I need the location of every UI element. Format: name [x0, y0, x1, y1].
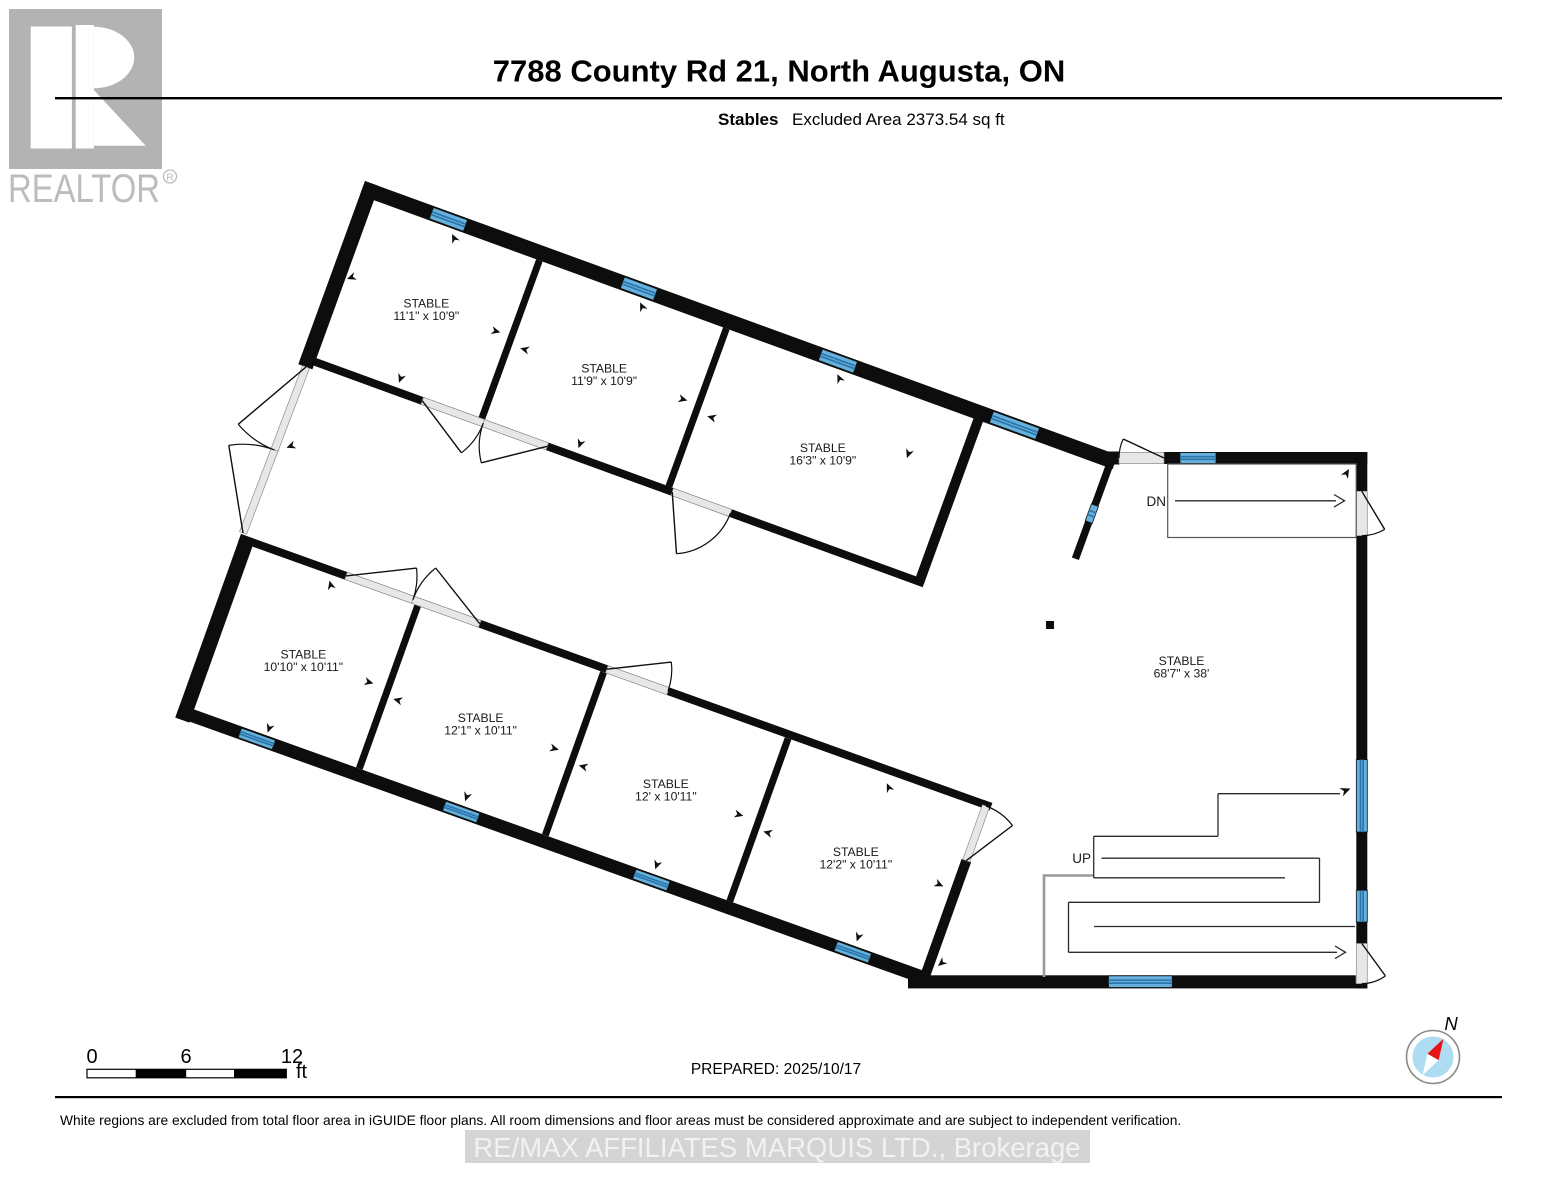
svg-text:White regions are excluded fro: White regions are excluded from total fl… [60, 1113, 1181, 1128]
svg-text:12'2" x 10'11": 12'2" x 10'11" [819, 858, 892, 872]
svg-text:R: R [166, 173, 173, 184]
svg-text:REALTOR: REALTOR [8, 167, 160, 211]
svg-text:RE/MAX AFFILIATES MARQUIS LTD.: RE/MAX AFFILIATES MARQUIS LTD., Brokerag… [473, 1132, 1080, 1163]
svg-text:10'10" x 10'11": 10'10" x 10'11" [264, 660, 344, 674]
svg-text:11'1" x 10'9": 11'1" x 10'9" [393, 309, 459, 323]
svg-text:N: N [1444, 1013, 1458, 1034]
svg-text:Stables: Stables [718, 110, 778, 129]
svg-text:ft: ft [296, 1061, 308, 1083]
svg-text:7788 County Rd 21, North Augus: 7788 County Rd 21, North Augusta, ON [493, 54, 1065, 89]
svg-text:UP: UP [1072, 851, 1091, 866]
svg-text:68'7" x 38': 68'7" x 38' [1154, 667, 1210, 681]
svg-text:PREPARED: 2025/10/17: PREPARED: 2025/10/17 [691, 1061, 861, 1078]
svg-text:16'3" x 10'9": 16'3" x 10'9" [789, 453, 856, 467]
svg-text:12'1" x 10'11": 12'1" x 10'11" [444, 723, 517, 737]
svg-text:11'9" x 10'9": 11'9" x 10'9" [571, 374, 637, 388]
svg-text:Excluded Area 2373.54 sq ft: Excluded Area 2373.54 sq ft [792, 110, 1005, 129]
svg-text:12' x 10'11": 12' x 10'11" [635, 790, 697, 804]
svg-text:0: 0 [86, 1046, 97, 1068]
svg-text:DN: DN [1147, 494, 1167, 509]
svg-text:6: 6 [180, 1046, 191, 1068]
